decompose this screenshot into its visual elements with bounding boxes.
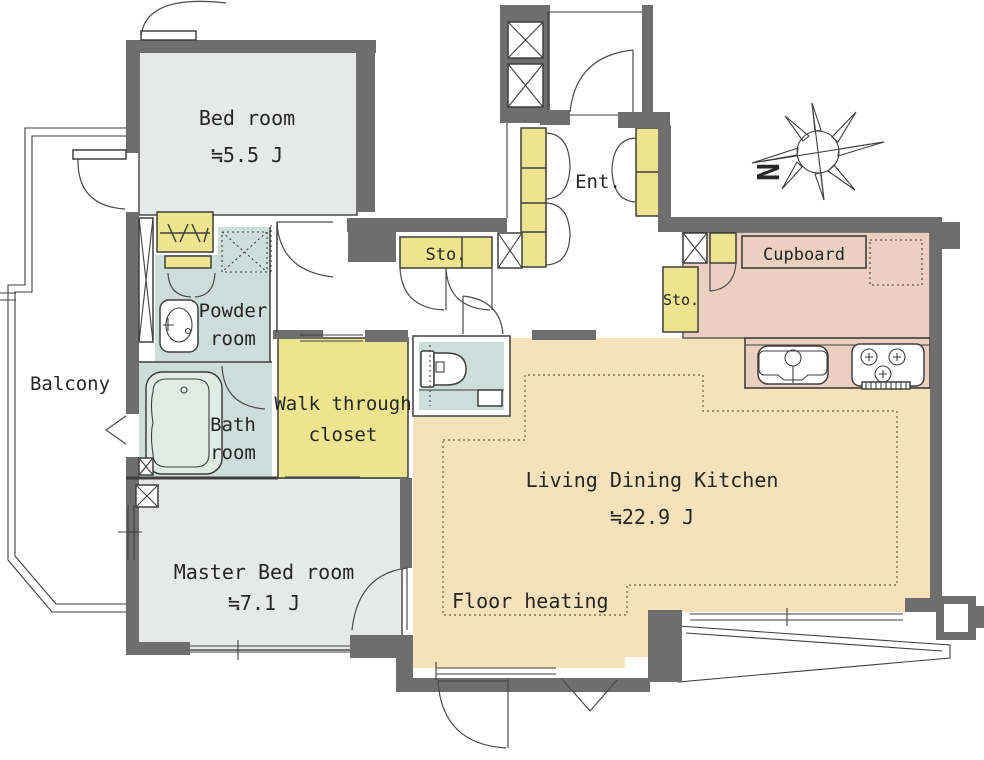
elevator-shaft-2 <box>508 64 543 107</box>
bath-room-label-2: room <box>210 442 256 464</box>
hall-storage-doors <box>400 268 492 310</box>
ldk-label: Living Dining Kitchen <box>526 468 779 492</box>
wtc-label-1: Walk through <box>274 393 411 415</box>
bedroom-floor <box>139 52 357 215</box>
master-bedroom-area: ≒7.1 J <box>228 591 300 615</box>
floor-plan-drawing: N Bed room ≒5.5 J Ent. Sto. Cupboard Sto… <box>0 0 984 760</box>
linen-shelf <box>165 256 211 268</box>
master-pipe-shaft <box>136 485 158 507</box>
balcony-door <box>73 150 126 209</box>
compass-rose-icon <box>752 103 884 200</box>
bath-vent-opening <box>106 416 126 444</box>
kitchen-storage-label: Sto. <box>663 291 699 309</box>
ldk-area: ≒22.9 J <box>610 505 694 529</box>
master-bedroom-label: Master Bed room <box>174 560 355 584</box>
floor-plan: N Bed room ≒5.5 J Ent. Sto. Cupboard Sto… <box>0 0 984 760</box>
entrance-cabinet-doors <box>546 133 636 265</box>
kitchen-small-cabinet <box>710 233 736 263</box>
powder-room-label-2: room <box>210 328 256 350</box>
elevator-shaft-1 <box>508 22 543 58</box>
hall-pipe-shaft <box>498 233 522 268</box>
balcony-label: Balcony <box>30 373 110 395</box>
kitchen-sink <box>758 346 828 384</box>
corner-column <box>936 596 984 640</box>
powder-sink <box>160 300 198 352</box>
wtc-label-2: closet <box>309 424 378 446</box>
balcony-outline <box>0 128 126 612</box>
entrance-door <box>570 50 633 112</box>
entrance-label: Ent. <box>575 171 621 193</box>
bath-room-label-1: Bath <box>210 414 256 436</box>
lower-balcony-outline <box>678 626 950 682</box>
floor-heating-label: Floor heating <box>452 589 609 613</box>
bedroom-label: Bed room <box>199 106 295 130</box>
cupboard-label: Cupboard <box>763 245 845 265</box>
toilet-door <box>463 296 503 334</box>
bedroom-area: ≒5.5 J <box>211 143 283 167</box>
kitchen-pipe-shaft <box>683 233 707 263</box>
entrance-left-cabinet <box>521 128 546 267</box>
powder-room-label-1: Powder <box>199 300 268 322</box>
bedroom-door <box>277 222 333 277</box>
stove <box>852 344 924 389</box>
bedroom-balcony-door <box>141 1 226 40</box>
hall-storage-label: Sto. <box>426 245 467 265</box>
compass-north-label: N <box>749 163 784 181</box>
compass: N <box>749 103 884 200</box>
